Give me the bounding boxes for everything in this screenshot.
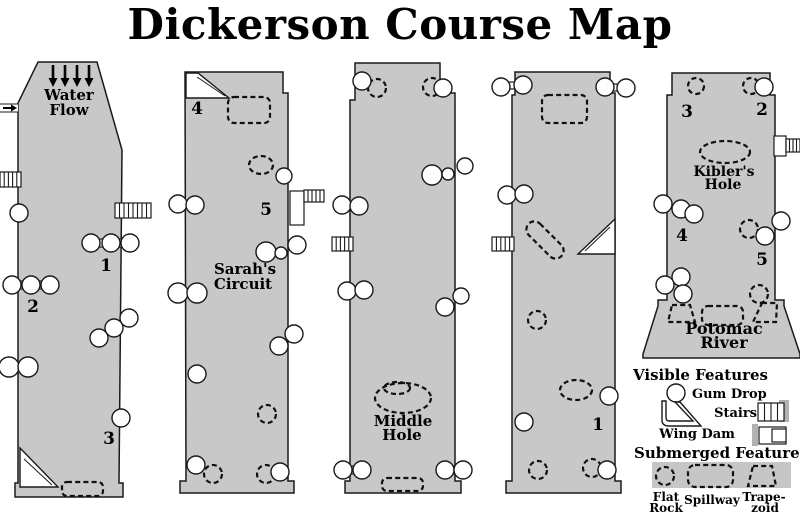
stairs-icon: [492, 237, 514, 251]
gum-drop: [756, 227, 774, 245]
course-map-canvas: WaterFlow12345Sarah'sCircuitMiddleHole13…: [0, 0, 800, 530]
gum-drop: [617, 79, 635, 97]
gum-drop: [772, 212, 790, 230]
map-label: 2: [756, 100, 768, 120]
gum-drop: [333, 196, 351, 214]
wing-dam-legend-icon: [662, 401, 701, 426]
platform-legend-icon-inner: [772, 429, 786, 442]
gum-drop: [18, 357, 38, 377]
gum-drop: [90, 329, 108, 347]
gum-drop: [186, 196, 204, 214]
gum-drop: [187, 283, 207, 303]
gum-drop: [674, 285, 692, 303]
gum-drop: [454, 461, 472, 479]
gum-drop: [41, 276, 59, 294]
gum-drop: [256, 242, 276, 262]
gum-drop: [334, 461, 352, 479]
map-label: Flow: [49, 101, 89, 119]
gum-drop: [353, 461, 371, 479]
map-label: 4: [676, 226, 688, 246]
course-map-page: Dickerson Course Map WaterFlow12345Sarah…: [0, 0, 800, 530]
gum-drop: [276, 168, 292, 184]
gum-drop: [338, 282, 356, 300]
gum-drop: [654, 195, 672, 213]
legend-submerged-heading: Submerged Features: [634, 444, 800, 462]
gum-drop: [685, 205, 703, 223]
gum-drop: [598, 461, 616, 479]
gum-drop: [514, 76, 532, 94]
map-label: 1: [100, 256, 112, 276]
map-label: 2: [27, 297, 39, 317]
gum-drop: [22, 276, 40, 294]
gum-drop: [436, 298, 454, 316]
gum-drop: [275, 247, 287, 259]
gum-drop: [121, 234, 139, 252]
gum-drop: [285, 325, 303, 343]
map-label: 3: [681, 102, 693, 122]
gum-drop: [112, 409, 130, 427]
stairs-icon: [332, 237, 353, 251]
gum-drop: [188, 365, 206, 383]
gum-drop: [498, 186, 516, 204]
gum-drop: [168, 283, 188, 303]
gum-drop: [271, 463, 289, 481]
gum-drop: [0, 357, 19, 377]
map-label: 5: [756, 250, 768, 270]
gum-drop: [270, 337, 288, 355]
legend-stairs-label: Stairs: [714, 406, 757, 421]
gum-drop: [596, 78, 614, 96]
gum-drop: [82, 234, 100, 252]
gum-drop: [102, 234, 120, 252]
gum-drop: [755, 78, 773, 96]
gum-drop: [422, 165, 442, 185]
map-label: Hole: [382, 426, 421, 444]
map-label: 4: [191, 99, 203, 119]
legend-visible-heading: Visible Features: [632, 366, 768, 384]
gum-drop: [656, 276, 674, 294]
gum-drop: [169, 195, 187, 213]
stairs-icon: [304, 190, 324, 202]
stairs-icon: [0, 172, 21, 187]
gum-drop: [353, 72, 371, 90]
map-label: 1: [592, 415, 604, 435]
gum-drop: [457, 158, 473, 174]
map-label: Circuit: [214, 275, 272, 293]
gum-drop-legend-icon: [667, 384, 685, 402]
gum-drop: [492, 78, 510, 96]
gum-drop: [350, 197, 368, 215]
map-label: River: [700, 333, 748, 352]
gum-drop: [10, 204, 28, 222]
map-label: Hole: [705, 177, 742, 193]
gum-drop: [453, 288, 469, 304]
gum-drop: [672, 268, 690, 286]
legend-gum-drop-label: Gum Drop: [692, 387, 767, 402]
gum-drop: [434, 79, 452, 97]
gum-drop: [187, 456, 205, 474]
gum-drop: [436, 461, 454, 479]
legend-trapezoid-label: zoid: [751, 501, 779, 515]
gum-drop: [515, 413, 533, 431]
platform: [774, 136, 786, 156]
platform: [290, 191, 304, 225]
gum-drop: [3, 276, 21, 294]
gum-drop: [600, 387, 618, 405]
legend-wing-dam-label: Wing Dam: [658, 427, 735, 442]
legend-flat-rock-label: Rock: [649, 501, 683, 515]
map-label: 3: [103, 429, 115, 449]
map-label: 5: [260, 200, 272, 220]
gum-drop: [515, 185, 533, 203]
platform-icon-shadow: [752, 424, 758, 446]
legend-spillway-label: Spillway: [684, 493, 741, 507]
gum-drop: [355, 281, 373, 299]
gum-drop: [288, 236, 306, 254]
gum-drop: [442, 168, 454, 180]
